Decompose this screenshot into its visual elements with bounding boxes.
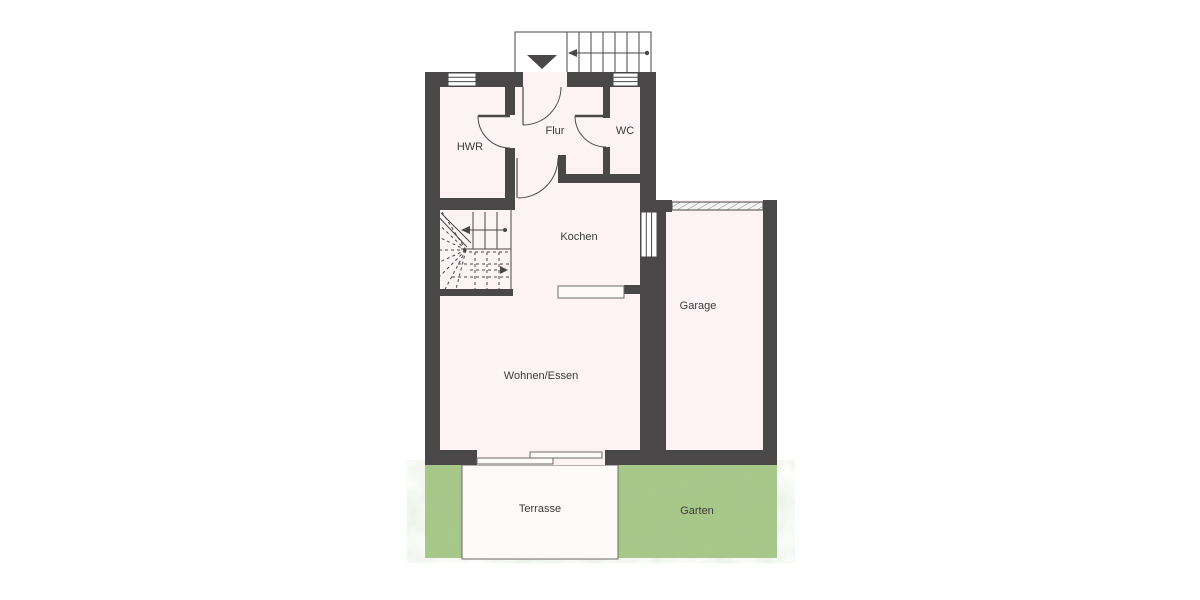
entrance-porch <box>515 32 651 72</box>
wall-flur-door-jamb <box>558 155 566 179</box>
garage-floor <box>656 200 777 465</box>
room-label-garage: Garage <box>680 300 717 312</box>
window-hwr <box>448 73 476 86</box>
window-kitchen <box>641 212 657 257</box>
wall-hwr-bottom <box>440 198 515 210</box>
wall-bottom-left <box>425 450 477 465</box>
wall-counter-stub <box>624 285 656 294</box>
porch-outline <box>515 32 651 72</box>
entrance-marker-icon <box>527 55 557 69</box>
wall-right-house <box>640 72 656 465</box>
kitchen-counter <box>558 286 624 298</box>
exterior-stair-treads <box>567 32 639 72</box>
room-label-wohnen-essen: Wohnen/Essen <box>504 370 578 382</box>
floor-plan-canvas: HWR Flur WC Kochen Garage Wohnen/Essen T… <box>0 0 1200 600</box>
room-label-flur: Flur <box>546 125 565 137</box>
wall-hwr-right-upper <box>505 87 515 115</box>
exterior-stair-direction-arrow <box>568 49 649 57</box>
wall-wc-left-upper <box>603 87 610 118</box>
sliding-door-panel-rear <box>530 452 602 458</box>
wall-flur-bottom <box>558 174 640 183</box>
floor-plan-drawing: HWR Flur WC Kochen Garage Wohnen/Essen T… <box>0 0 1200 600</box>
room-label-wc: WC <box>616 125 634 137</box>
room-label-garten: Garten <box>680 505 714 517</box>
wall-garage-corner-left <box>656 200 672 212</box>
room-label-kochen: Kochen <box>560 231 597 243</box>
window-wc <box>613 73 638 86</box>
room-label-hwr: HWR <box>457 141 483 153</box>
room-label-terrasse: Terrasse <box>519 503 561 515</box>
garage-door <box>672 202 763 210</box>
sliding-door-panel-front <box>477 458 553 464</box>
wall-left <box>425 72 440 465</box>
wall-garage-bottom <box>656 450 777 465</box>
wall-garage-right <box>763 200 777 465</box>
wall-bottom-right <box>605 450 656 465</box>
wall-wc-left-lower <box>603 147 610 174</box>
